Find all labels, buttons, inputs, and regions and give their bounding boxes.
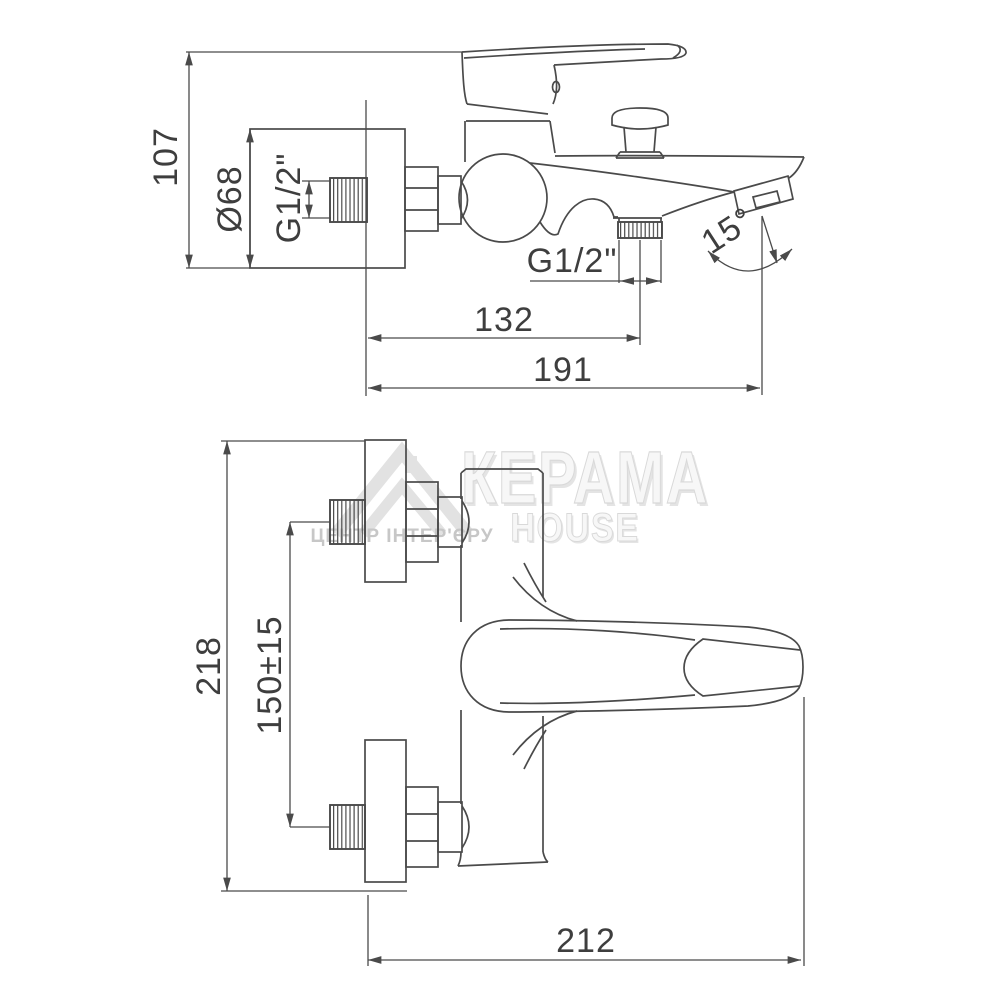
dimension-150: 150±15 bbox=[251, 522, 330, 827]
faucet-dimension-drawing: КЕРАМА КЕРАМА HOUSE HOUSE ЦЕНТР ІНТЕР'ЄР… bbox=[0, 0, 1000, 1000]
lever-handle bbox=[462, 44, 686, 114]
bottom-inlet-thread bbox=[330, 805, 365, 849]
inlet-thread bbox=[330, 178, 367, 222]
dim-label-212: 212 bbox=[556, 922, 616, 960]
side-view: 107 Ø68 G1/2" G1/2" bbox=[147, 44, 804, 396]
dimension-212: 212 bbox=[368, 697, 804, 966]
shower-outlet-thread bbox=[618, 218, 662, 238]
hex-nut bbox=[405, 167, 438, 231]
watermark: КЕРАМА КЕРАМА HOUSE HOUSE ЦЕНТР ІНТЕР'ЄР… bbox=[310, 437, 711, 551]
side-view-dimensions: 107 Ø68 G1/2" G1/2" bbox=[147, 52, 792, 395]
technical-drawing-page: КЕРАМА КЕРАМА HOUSE HOUSE ЦЕНТР ІНТЕР'ЄР… bbox=[0, 0, 1000, 1000]
top-inlet-thread bbox=[330, 500, 365, 544]
dim-label-107: 107 bbox=[147, 127, 185, 187]
dimension-218: 218 bbox=[190, 441, 407, 891]
dimension-191: 191 bbox=[368, 351, 760, 389]
watermark-brand-line2: HOUSE bbox=[510, 504, 639, 549]
bottom-hex-nut bbox=[406, 787, 438, 867]
cartridge-collar bbox=[465, 121, 555, 162]
bottom-eccentric-connector bbox=[438, 802, 469, 852]
dim-label-132: 132 bbox=[474, 301, 534, 339]
dimension-shower-thread: G1/2" bbox=[527, 240, 661, 285]
lever-handle-plan bbox=[461, 563, 803, 769]
dim-label-inlet-thread: G1/2" bbox=[270, 153, 308, 244]
dim-label-shower-thread: G1/2" bbox=[527, 242, 618, 280]
dimension-inlet-thread: G1/2" bbox=[270, 153, 331, 244]
diverter-knob bbox=[612, 108, 668, 158]
dim-label-191: 191 bbox=[533, 351, 593, 389]
dim-label-dia68: Ø68 bbox=[211, 165, 249, 232]
bottom-flange-plate bbox=[365, 740, 406, 882]
body-sphere bbox=[459, 154, 547, 242]
dim-label-angle-15: 15° bbox=[695, 200, 761, 262]
dim-label-218: 218 bbox=[190, 636, 228, 696]
dim-label-150: 150±15 bbox=[251, 615, 289, 734]
dimension-angle-15: 15° bbox=[695, 200, 792, 395]
dimension-dia68: Ø68 bbox=[211, 129, 250, 268]
